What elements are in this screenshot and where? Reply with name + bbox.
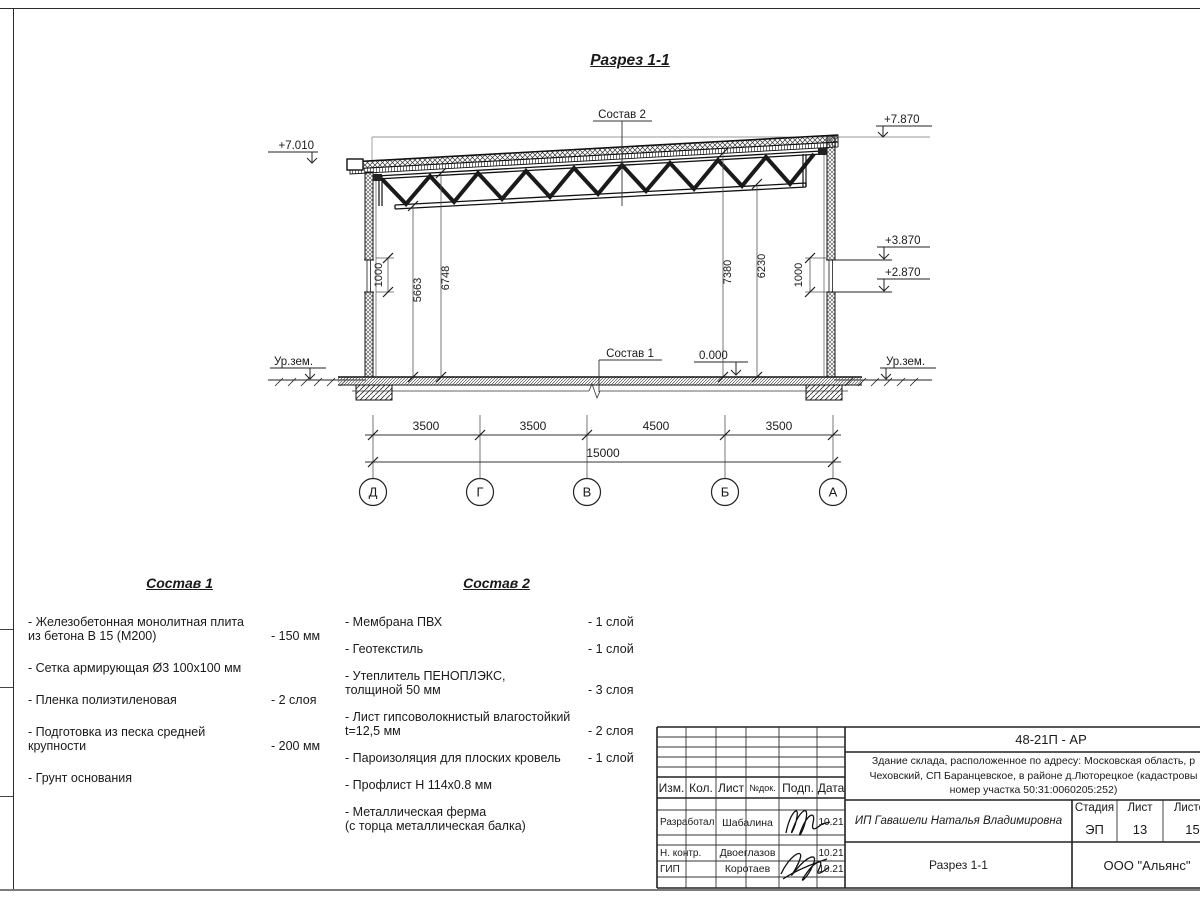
floor-underline [352,384,848,398]
sheet-label: Лист [1117,800,1163,816]
composition-2-heading: Состав 2 [345,576,648,590]
project-object: Здание склада, расположенное по адресу: … [845,753,1200,799]
role-gip: ГИП [657,861,719,877]
list-item: - Утеплитель ПЕНОПЛЭКС, толщиной 50 мм- … [345,669,648,697]
dim-span-3: 4500 [643,419,670,433]
col-kol: Кол. [686,777,716,798]
grid-label-g: Г [476,485,483,500]
list-item: - Железобетонная монолитная плита из бет… [28,615,331,643]
truss-left-seat [373,174,382,181]
dim-5663: 5663 [412,278,424,302]
col-list: Лист [716,777,746,798]
dim-6230: 6230 [756,254,768,278]
margin-tick-1 [0,629,13,630]
roof-package [347,135,930,174]
callout-floor-label: Состав 1 [606,348,654,360]
right-wall [824,136,837,377]
elevation-zero: 0.000 [699,350,728,362]
role-razrabotal: Разработал [657,810,719,835]
dim-left-window: 1000 [373,263,385,287]
ground-label-right: Ур.зем. [886,356,925,368]
sheet-number: 13 [1117,816,1163,842]
list-item: - Геотекстиль- 1 слой [345,642,648,656]
dim-right-window: 1000 [793,263,805,287]
margin-tick-2 [0,687,13,688]
col-ndok: №док. [746,777,779,798]
right-window [826,260,837,292]
col-podp: Подп. [779,777,817,798]
roof-edge-beam [347,159,363,170]
role-nkontr: Н. контр. [657,845,719,861]
left-footing [356,385,392,400]
grid-label-b: Б [721,485,730,500]
sheets-total: 15 [1163,816,1200,842]
name-korotaev: Коротаев [716,861,779,877]
date-gip: 10.21 [817,861,845,877]
client-name: ИП Гавашели Наталья Владимировна [848,800,1069,842]
grid-label-a: А [829,485,838,500]
list-item: - Мембрана ПВХ- 1 слой [345,615,648,629]
grid-label-d: Д [369,485,378,500]
grid-label-v: В [583,485,592,500]
elevation-window-top: +3.870 [885,235,921,247]
truss-right-seat [818,148,827,155]
name-shabalina: Шабалина [716,810,779,835]
right-footing [806,385,842,400]
project-code: 48-21П - АР [880,727,1200,752]
elevation-left-top: +7.010 [279,140,315,152]
stage-label: Стадия [1072,800,1117,816]
company-name: ООО "Альянс" [1072,842,1200,888]
dim-span-4: 3500 [766,419,793,433]
list-item: - Сетка армирующая Ø3 100х100 мм [28,661,331,675]
callout-roof-label: Состав 2 [598,109,646,121]
col-data: Дата [817,777,845,798]
dim-7380: 7380 [722,260,734,284]
col-izm: Изм. [657,777,686,798]
name-dvoeglazov: Двоеглазов [716,845,779,861]
dim-6748: 6748 [440,266,452,290]
ground-label-left: Ур.зем. [274,356,313,368]
elevation-right-top: +7.870 [884,114,920,126]
dim-span-2: 3500 [520,419,547,433]
composition-1-heading: Состав 1 [28,576,331,590]
dimension-ticks [383,148,815,382]
stage-value: ЭП [1072,816,1117,842]
date-razrabotal: 10.21 [817,813,845,831]
section-name: Разрез 1-1 [845,842,1072,888]
dim-span-1: 3500 [413,419,440,433]
sheets-label: Листов [1163,800,1200,816]
grid-bubbles [360,479,847,506]
section-drawing: +7.010 +7.870 +3.870 +2.870 Ур.зем. Ур.з… [0,0,1200,560]
dim-total-span: 15000 [586,446,620,460]
callout-floor-leader [599,360,662,392]
date-nkontr: 10.21 [817,845,845,861]
truss-right-post [803,154,806,187]
elevation-window-bottom: +2.870 [885,267,921,279]
floor-slab [338,377,862,385]
